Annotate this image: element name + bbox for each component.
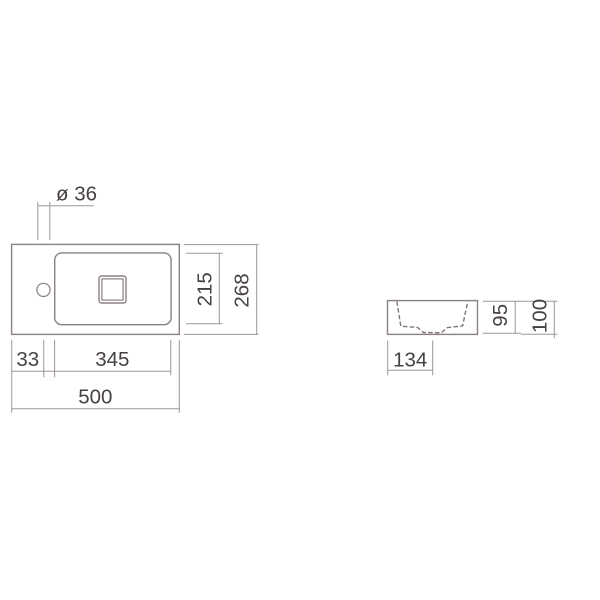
svg-text:134: 134 xyxy=(393,349,427,372)
svg-text:95: 95 xyxy=(489,304,512,327)
svg-text:ø 36: ø 36 xyxy=(56,183,97,206)
svg-text:100: 100 xyxy=(529,299,552,333)
svg-text:345: 345 xyxy=(95,348,129,371)
svg-text:500: 500 xyxy=(78,385,112,408)
svg-text:215: 215 xyxy=(194,272,217,306)
svg-text:268: 268 xyxy=(230,273,253,307)
svg-text:33: 33 xyxy=(16,348,39,371)
